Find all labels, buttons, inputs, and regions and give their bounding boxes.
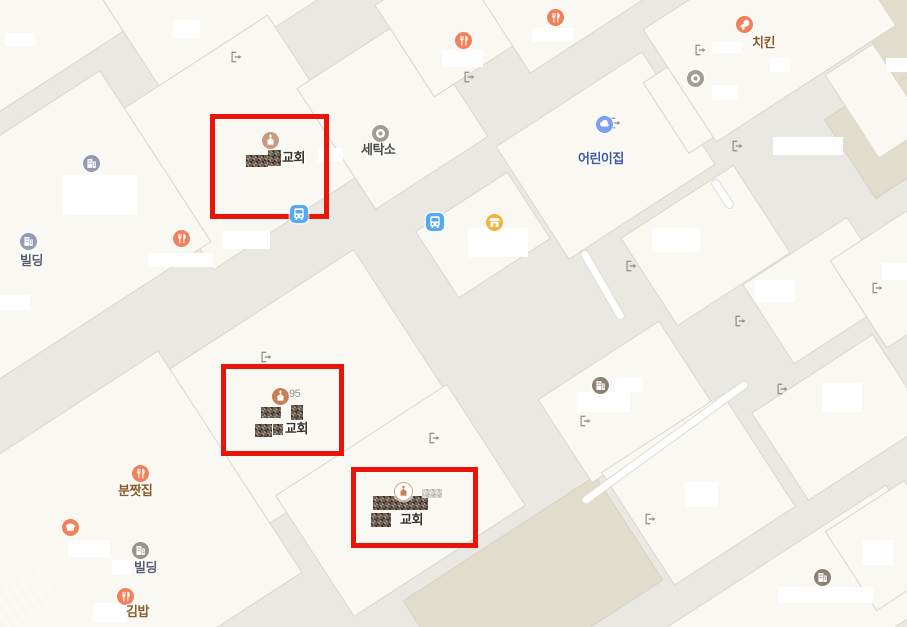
poi-label[interactable]: 치킨 (752, 36, 775, 49)
church-icon[interactable] (394, 482, 413, 501)
restaurant-icon[interactable] (547, 9, 564, 26)
censored-text (371, 513, 391, 527)
entrance-icon (730, 139, 744, 153)
entrance-icon (624, 259, 638, 273)
poi-label[interactable]: 분짯집 (118, 484, 152, 497)
highlight-rectangle (210, 114, 329, 219)
chicken-icon[interactable] (736, 16, 753, 33)
restaurant-icon[interactable] (455, 32, 472, 49)
building-icon[interactable] (814, 569, 831, 586)
redaction-box (442, 50, 483, 67)
restaurant-icon[interactable] (173, 230, 190, 247)
redaction-box (755, 280, 795, 302)
place-dot-icon[interactable] (687, 70, 704, 87)
censored-text (291, 405, 303, 420)
poi-label[interactable]: 교회 (400, 513, 423, 526)
censored-text (273, 424, 283, 435)
redaction-box (222, 231, 270, 249)
redaction-box (685, 482, 718, 507)
entrance-icon (462, 70, 476, 84)
redaction-box (712, 42, 742, 53)
entrance-icon (427, 431, 441, 445)
poi-label[interactable]: 김밥 (126, 605, 149, 618)
poi-label[interactable]: 교회 (285, 422, 308, 435)
redaction-box (770, 58, 790, 72)
redaction-box (532, 28, 573, 42)
entrance-icon (693, 43, 707, 57)
redaction-box (62, 175, 137, 215)
censored-text (255, 424, 272, 437)
redaction-box (712, 85, 738, 100)
building-icon[interactable] (132, 542, 149, 559)
highlight-rectangle (221, 364, 344, 456)
redaction-box (5, 33, 35, 46)
bus-stop-icon[interactable] (426, 213, 444, 231)
redaction-box (0, 295, 30, 310)
redaction-box (863, 540, 893, 565)
censored-text (261, 407, 281, 418)
entrance-icon (733, 314, 747, 328)
church-icon[interactable] (272, 388, 289, 405)
redaction-box (148, 253, 213, 267)
censored-text (422, 489, 442, 498)
redaction-box (886, 58, 907, 72)
redaction-box (93, 603, 127, 622)
redaction-box (778, 587, 873, 603)
redaction-box (615, 377, 643, 392)
poi-label[interactable]: 빌딩 (20, 254, 43, 267)
map-canvas[interactable]: 치킨세탁소어린이집빌딩교회95교회교회분짯집빌딩김밥 (0, 0, 907, 627)
building-icon[interactable] (83, 155, 100, 172)
redaction-box (468, 228, 528, 257)
bakery-icon[interactable] (62, 519, 79, 536)
entrance-icon (259, 350, 273, 364)
redaction-box (773, 137, 843, 155)
entrance-icon (775, 382, 789, 396)
redaction-box (112, 560, 132, 575)
restaurant-icon[interactable] (132, 465, 149, 482)
building-icon[interactable] (20, 233, 37, 250)
poi-label[interactable]: 95 (289, 389, 300, 400)
parking-strip (579, 248, 627, 322)
entrance-icon (870, 281, 884, 295)
censored-text (268, 150, 281, 166)
redaction-box (68, 540, 110, 557)
redaction-box (822, 383, 862, 412)
daycare-icon[interactable] (596, 116, 613, 133)
redaction-box (652, 228, 700, 252)
store-icon[interactable] (486, 214, 503, 231)
censored-text (246, 155, 268, 167)
church-icon[interactable] (262, 132, 279, 149)
poi-label[interactable]: 교회 (282, 151, 305, 164)
redaction-box (882, 263, 907, 280)
entrance-icon (578, 414, 592, 428)
restaurant-icon[interactable] (117, 588, 134, 605)
poi-label[interactable]: 빌딩 (134, 561, 157, 574)
redaction-box (173, 20, 200, 38)
poi-label[interactable]: 어린이집 (578, 152, 624, 165)
entrance-icon (643, 512, 657, 526)
poi-label[interactable]: 세탁소 (361, 143, 395, 156)
building-icon[interactable] (592, 377, 609, 394)
entrance-icon (229, 50, 243, 64)
laundry-icon[interactable] (372, 125, 389, 142)
redaction-box (577, 392, 630, 412)
bus-stop-icon[interactable] (290, 205, 308, 223)
